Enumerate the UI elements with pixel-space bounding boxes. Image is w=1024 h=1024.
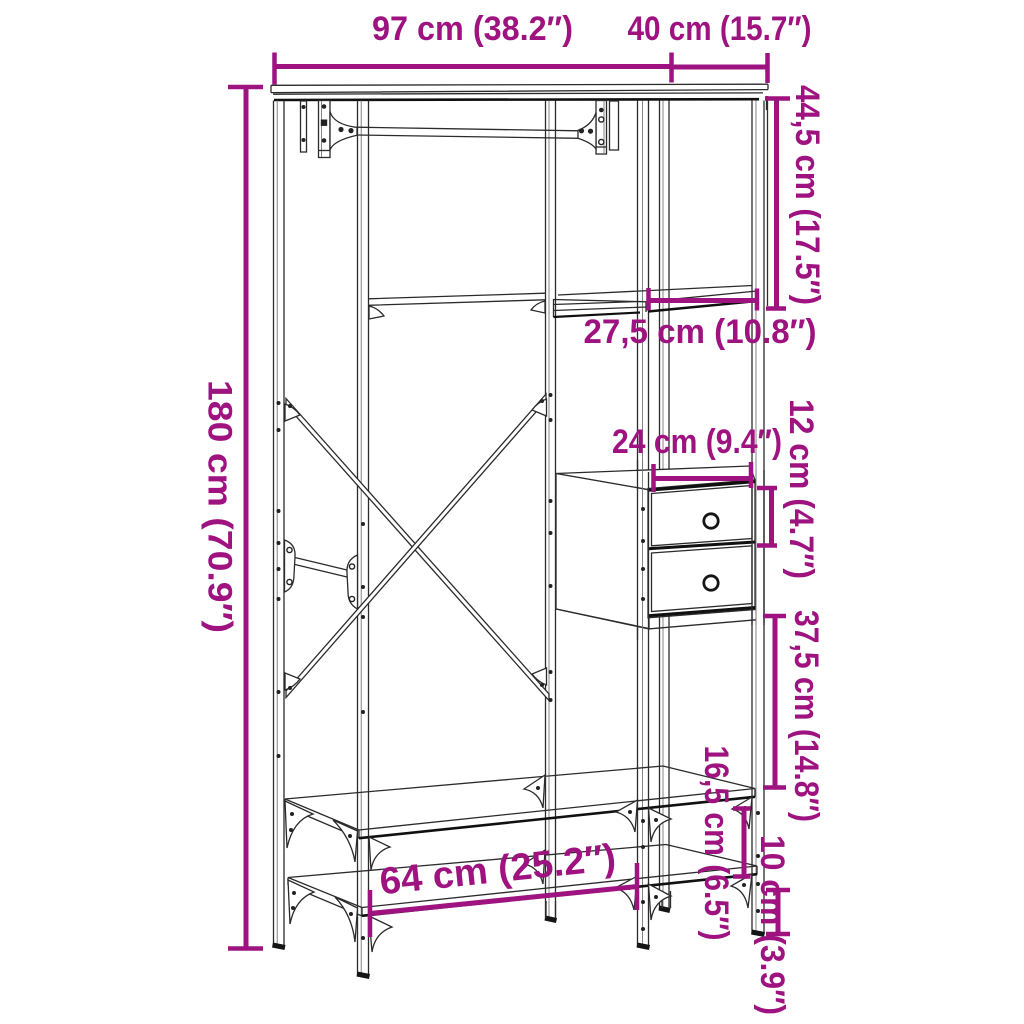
svg-text:12 cm (4.7″): 12 cm (4.7″) xyxy=(782,399,820,579)
svg-text:24 cm (9.4″): 24 cm (9.4″) xyxy=(612,423,782,461)
svg-text:10 cm (3.9″): 10 cm (3.9″) xyxy=(753,835,791,1015)
svg-text:40 cm (15.7″): 40 cm (15.7″) xyxy=(628,10,812,48)
svg-text:27,5 cm (10.8″): 27,5 cm (10.8″) xyxy=(584,313,817,351)
svg-text:180 cm (70.9″): 180 cm (70.9″) xyxy=(201,380,239,633)
svg-text:37,5 cm (14.8″): 37,5 cm (14.8″) xyxy=(787,610,825,822)
svg-text:16,5 cm (6.5″): 16,5 cm (6.5″) xyxy=(697,746,735,941)
svg-text:97 cm (38.2″): 97 cm (38.2″) xyxy=(372,10,573,48)
svg-text:44,5 cm (17.5″): 44,5 cm (17.5″) xyxy=(788,85,826,305)
